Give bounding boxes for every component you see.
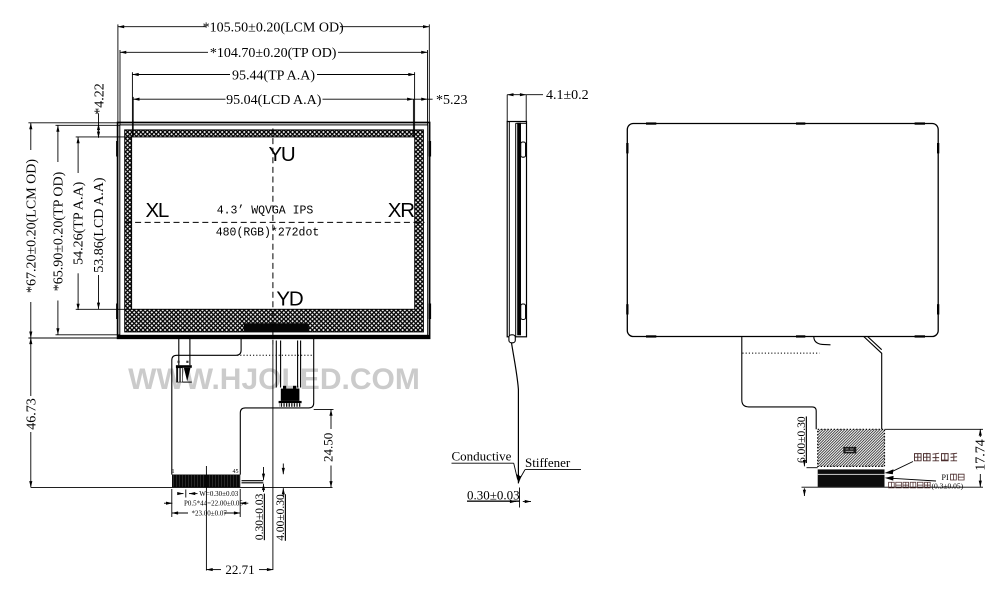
svg-text:46.73: 46.73 <box>24 398 39 430</box>
svg-text:Stiffener: Stiffener <box>525 455 571 470</box>
svg-text:0.30±0.03: 0.30±0.03 <box>254 493 266 540</box>
svg-text:45: 45 <box>233 469 239 475</box>
svg-text:*105.50±0.20(LCM OD): *105.50±0.20(LCM OD) <box>203 20 344 35</box>
svg-text:1: 1 <box>172 469 175 475</box>
svg-text:54.26(TP A.A): 54.26(TP A.A) <box>72 181 87 264</box>
svg-text:Conductive: Conductive <box>452 449 512 464</box>
svg-text:XL: XL <box>145 199 168 222</box>
svg-text:22.71: 22.71 <box>225 562 254 577</box>
svg-text:*104.70±0.20(TP OD): *104.70±0.20(TP OD) <box>210 46 337 61</box>
svg-text:24.50: 24.50 <box>321 433 336 462</box>
svg-text:W=0.30±0.03: W=0.30±0.03 <box>199 490 238 498</box>
svg-text:(0.3±0.05): (0.3±0.05) <box>932 481 964 490</box>
svg-text:*67.20±0.20(LCM OD): *67.20±0.20(LCM OD) <box>24 159 39 293</box>
svg-text:4.00±0.30: 4.00±0.30 <box>275 494 287 541</box>
svg-text:53.86(LCD A.A): 53.86(LCD A.A) <box>92 177 107 273</box>
svg-text:95.44(TP A.A): 95.44(TP A.A) <box>232 68 315 83</box>
svg-text:95.04(LCD A.A): 95.04(LCD A.A) <box>226 93 322 108</box>
svg-text:4.1±0.2: 4.1±0.2 <box>546 88 589 103</box>
svg-text:P0.5*44=22.00±0.05: P0.5*44=22.00±0.05 <box>184 500 243 508</box>
svg-text:YU: YU <box>268 143 294 166</box>
svg-text:6.00±0.30: 6.00±0.30 <box>796 416 808 463</box>
svg-text:4.3’ WQVGA IPS: 4.3’ WQVGA IPS <box>217 205 314 218</box>
svg-text:*23.00±0.07: *23.00±0.07 <box>192 510 228 518</box>
svg-text:XR: XR <box>388 199 414 222</box>
svg-text:*65.90±0.20(TP OD): *65.90±0.20(TP OD) <box>51 171 66 291</box>
svg-text:*5.23: *5.23 <box>436 93 468 108</box>
svg-text:*4.22: *4.22 <box>92 83 107 115</box>
svg-text:0.30±0.03: 0.30±0.03 <box>467 488 520 503</box>
svg-text:480(RGB)*272dot: 480(RGB)*272dot <box>216 227 320 240</box>
svg-text:YD: YD <box>276 288 302 311</box>
svg-text:17.74: 17.74 <box>973 439 988 471</box>
